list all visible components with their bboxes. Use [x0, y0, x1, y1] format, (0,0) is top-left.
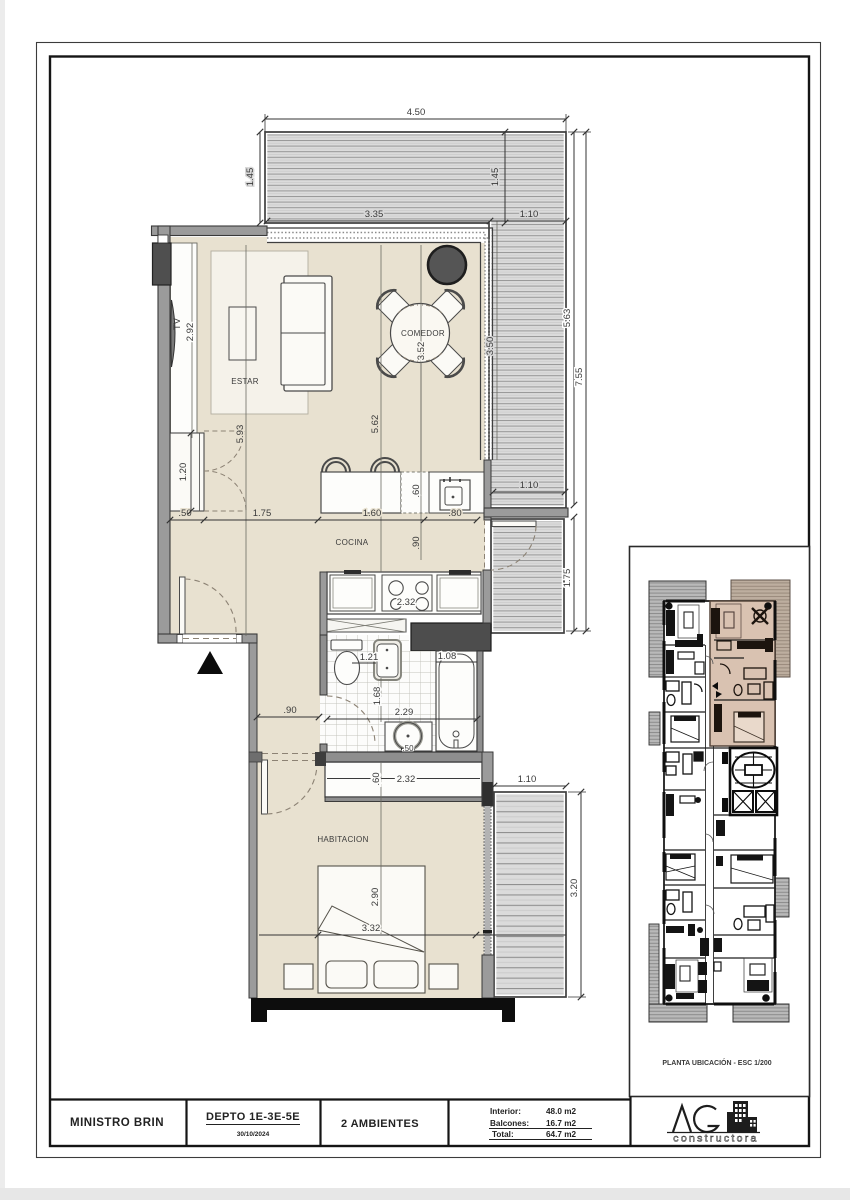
svg-text:48.0 m2: 48.0 m2 — [546, 1107, 576, 1116]
svg-text:1.21: 1.21 — [360, 652, 379, 663]
svg-text:5.63: 5.63 — [562, 309, 573, 328]
svg-text:2.92: 2.92 — [185, 323, 196, 342]
svg-text:.50: .50 — [178, 508, 191, 519]
svg-text:1.20: 1.20 — [178, 463, 189, 482]
svg-text:2.32: 2.32 — [397, 774, 416, 785]
svg-text:2.90: 2.90 — [370, 888, 381, 907]
svg-text:DEPTO 1E-3E-5E: DEPTO 1E-3E-5E — [206, 1111, 300, 1123]
svg-text:1.75: 1.75 — [253, 508, 272, 519]
svg-text:TV: TV — [172, 317, 183, 330]
svg-text:COMEDOR: COMEDOR — [401, 329, 445, 338]
svg-text:.90: .90 — [283, 705, 296, 716]
svg-text:7.55: 7.55 — [574, 368, 585, 387]
svg-text:16.7 m2: 16.7 m2 — [546, 1119, 576, 1128]
svg-text:3.32: 3.32 — [362, 923, 381, 934]
svg-text:1.10: 1.10 — [520, 480, 539, 491]
svg-text:ESTAR: ESTAR — [231, 377, 259, 386]
svg-text:1.10: 1.10 — [520, 209, 539, 220]
svg-text:MINISTRO BRIN: MINISTRO BRIN — [70, 1117, 164, 1129]
svg-text:1.75: 1.75 — [562, 569, 573, 588]
svg-text:.60: .60 — [411, 484, 422, 497]
svg-text:.80: .80 — [448, 508, 461, 519]
svg-text:1.08: 1.08 — [438, 651, 457, 662]
svg-text:5.62: 5.62 — [370, 415, 381, 434]
svg-text:5.93: 5.93 — [235, 425, 246, 444]
svg-text:Balcones:: Balcones: — [490, 1119, 529, 1128]
svg-text:.90: .90 — [411, 536, 422, 549]
svg-text:30/10/2024: 30/10/2024 — [237, 1131, 270, 1138]
svg-text:3.50: 3.50 — [485, 337, 496, 356]
svg-text:1.60: 1.60 — [363, 508, 382, 519]
svg-text:2.29: 2.29 — [395, 707, 414, 718]
svg-text:2.32: 2.32 — [397, 597, 416, 608]
svg-text:COCINA: COCINA — [336, 538, 369, 547]
svg-text:Interior:: Interior: — [490, 1107, 521, 1116]
svg-text:Total:: Total: — [492, 1130, 514, 1139]
svg-text:4.50: 4.50 — [407, 107, 426, 118]
svg-text:1.45: 1.45 — [490, 168, 501, 187]
svg-text:64.7 m2: 64.7 m2 — [546, 1130, 576, 1139]
svg-text:HABITACION: HABITACION — [317, 835, 368, 844]
svg-text:3.35: 3.35 — [365, 209, 384, 220]
svg-text:2 AMBIENTES: 2 AMBIENTES — [341, 1118, 419, 1130]
svg-text:constructora: constructora — [673, 1133, 758, 1145]
svg-text:3.20: 3.20 — [569, 879, 580, 898]
svg-text:3.52: 3.52 — [416, 342, 427, 361]
svg-text:.60: .60 — [371, 772, 382, 785]
svg-text:1.68: 1.68 — [372, 687, 383, 706]
svg-text:1.10: 1.10 — [518, 774, 537, 785]
svg-text:1.45: 1.45 — [245, 168, 256, 187]
svg-text:PLANTA UBICACIÓN - ESC 1/200: PLANTA UBICACIÓN - ESC 1/200 — [662, 1058, 771, 1067]
